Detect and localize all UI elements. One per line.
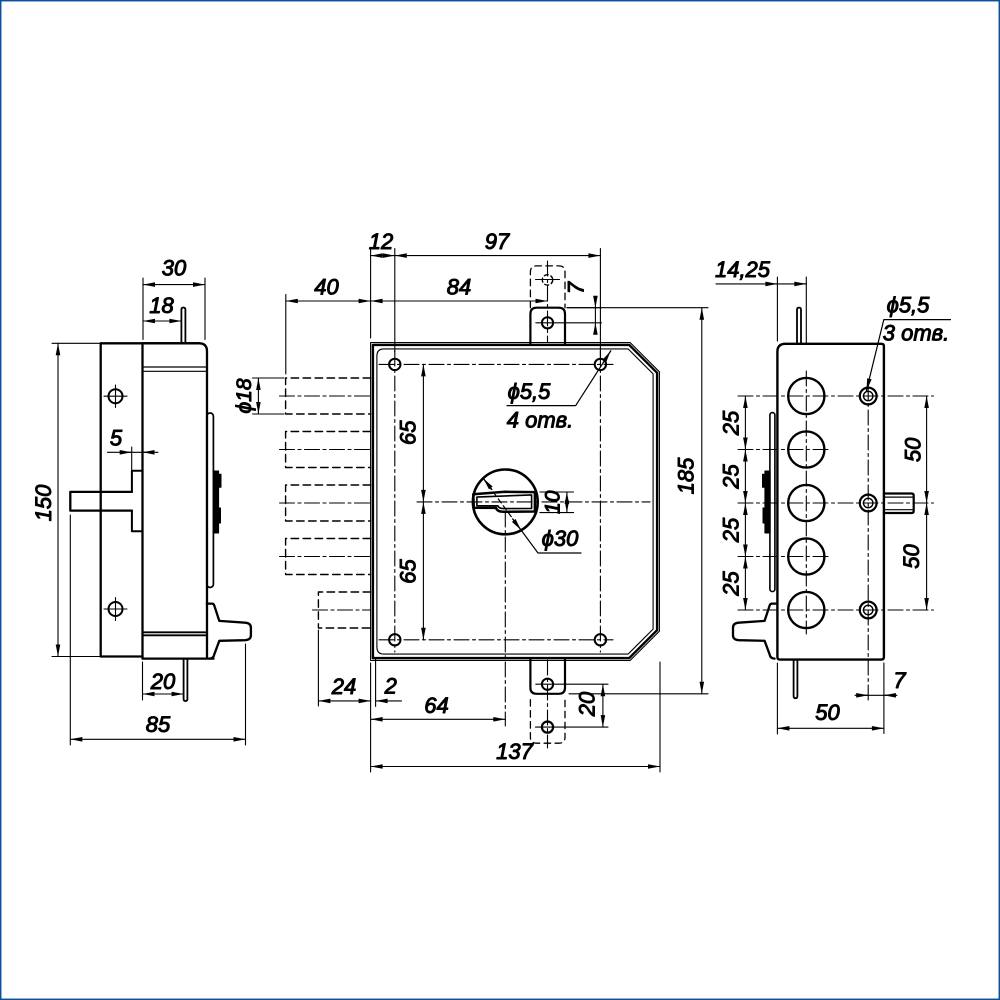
svg-text:65: 65: [396, 559, 421, 584]
svg-text:85: 85: [146, 712, 171, 737]
svg-text:50: 50: [815, 700, 840, 725]
svg-text:50: 50: [899, 544, 924, 569]
svg-text:3 отв.: 3 отв.: [883, 321, 950, 346]
svg-text:14,25: 14,25: [715, 257, 771, 282]
svg-text:25: 25: [718, 571, 743, 597]
svg-text:185: 185: [674, 457, 699, 494]
svg-text:7: 7: [564, 281, 589, 294]
svg-text:7: 7: [893, 668, 906, 693]
svg-text:20: 20: [150, 669, 176, 694]
svg-text:150: 150: [31, 484, 56, 521]
svg-text:10: 10: [542, 490, 565, 514]
svg-text:64: 64: [424, 693, 448, 718]
svg-text:97: 97: [485, 229, 510, 254]
svg-text:ϕ30: ϕ30: [542, 526, 579, 551]
svg-text:25: 25: [718, 517, 743, 543]
svg-text:12: 12: [369, 229, 393, 254]
svg-text:30: 30: [162, 256, 187, 281]
svg-text:40: 40: [314, 275, 339, 300]
svg-text:20: 20: [574, 691, 599, 717]
svg-text:137: 137: [496, 739, 533, 764]
svg-text:65: 65: [396, 420, 421, 445]
svg-text:18: 18: [149, 293, 174, 318]
svg-text:25: 25: [718, 410, 743, 436]
svg-text:4 отв.: 4 отв.: [507, 408, 574, 433]
svg-text:ϕ18: ϕ18: [233, 378, 256, 413]
svg-text:25: 25: [718, 464, 743, 490]
svg-text:2: 2: [384, 674, 397, 699]
svg-text:ϕ5,5: ϕ5,5: [887, 293, 931, 318]
svg-text:84: 84: [447, 275, 471, 300]
svg-text:ϕ5,5: ϕ5,5: [508, 379, 552, 404]
svg-text:50: 50: [901, 437, 926, 462]
svg-text:24: 24: [331, 674, 356, 699]
svg-text:5: 5: [110, 426, 123, 451]
